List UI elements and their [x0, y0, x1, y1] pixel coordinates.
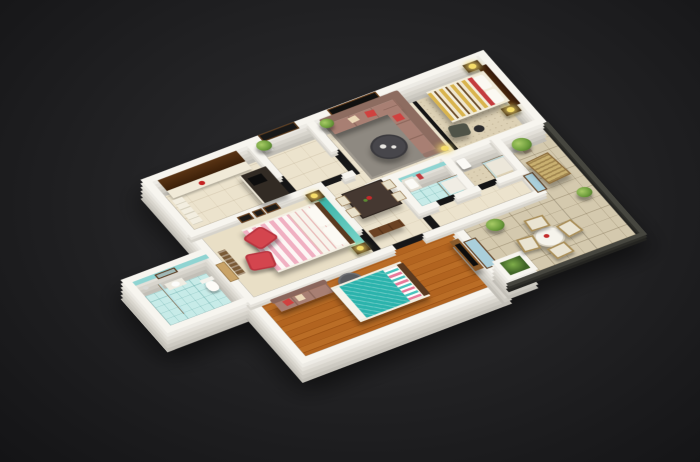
- floor-plan-render: [0, 0, 700, 462]
- isometric-apartment: [59, 49, 646, 394]
